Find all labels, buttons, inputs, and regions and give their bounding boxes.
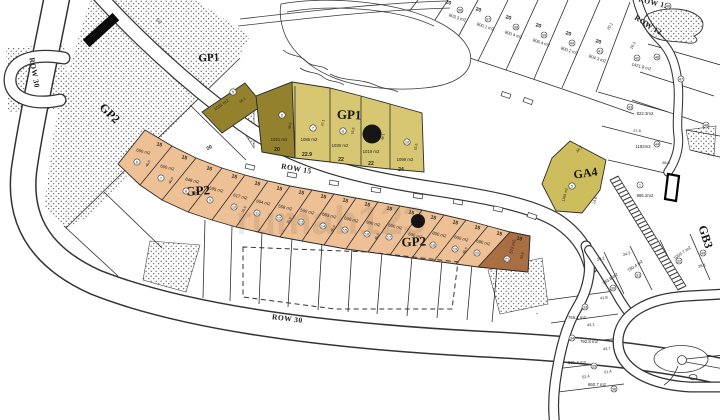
svg-text:7: 7 (160, 176, 162, 181)
svg-text:37: 37 (486, 17, 490, 22)
svg-text:21: 21 (505, 257, 509, 262)
svg-text:800.4 m2: 800.4 m2 (504, 29, 523, 39)
svg-text:27.8: 27.8 (633, 128, 641, 133)
svg-text:8: 8 (185, 189, 187, 194)
svg-text:9: 9 (209, 198, 211, 203)
svg-text:46: 46 (655, 55, 659, 60)
svg-text:19: 19 (453, 247, 457, 252)
svg-text:41: 41 (598, 49, 602, 54)
svg-text:20: 20 (445, 0, 452, 7)
svg-text:11: 11 (255, 211, 259, 216)
svg-text:20: 20 (274, 147, 280, 153)
svg-text:780.4 m2: 780.4 m2 (626, 258, 644, 273)
svg-text:24: 24 (398, 167, 404, 173)
svg-text:20: 20 (475, 6, 482, 14)
svg-text:7: 7 (312, 126, 314, 131)
svg-text:13: 13 (299, 220, 303, 225)
zone-gb3: GB3 (696, 224, 717, 251)
svg-text:1421.8 m2: 1421.8 m2 (631, 62, 652, 72)
svg-text:803.3 m2: 803.3 m2 (448, 12, 467, 22)
svg-text:38: 38 (514, 25, 518, 30)
screenshot-root: + rumah123 ROW 30 ROW 30 ROW 15 ROW 12 R… (0, 0, 720, 420)
svg-text:860.7 m2: 860.7 m2 (588, 382, 607, 387)
svg-text:986.2m2: 986.2m2 (637, 193, 654, 198)
svg-text:20: 20 (565, 30, 572, 38)
svg-text:36: 36 (458, 8, 462, 13)
svg-text:43.1: 43.1 (587, 322, 595, 328)
svg-text:1192m2: 1192m2 (635, 144, 651, 149)
svg-text:26.3: 26.3 (629, 41, 637, 50)
survey-cross: + (536, 311, 539, 316)
terrain-contour (238, 0, 471, 92)
svg-text:800.1 m2: 800.1 m2 (476, 21, 495, 31)
svg-text:1030 m2: 1030 m2 (332, 143, 349, 148)
svg-text:766.1 m2: 766.1 m2 (568, 315, 587, 320)
svg-text:45: 45 (666, 4, 670, 9)
svg-text:792.8 m2: 792.8 m2 (580, 339, 599, 344)
svg-text:14.6: 14.6 (591, 196, 598, 205)
svg-text:39: 39 (542, 33, 546, 38)
svg-text:33: 33 (583, 305, 587, 310)
svg-text:18: 18 (431, 243, 435, 248)
right-lot-labels: 42 1421.8 m2 43 822.3m2 44 1192m2 1 986.… (627, 55, 660, 198)
svg-text:15: 15 (343, 228, 347, 233)
svg-text:51.4: 51.4 (604, 368, 613, 374)
svg-text:16: 16 (365, 232, 369, 237)
svg-text:800.2 m2: 800.2 m2 (560, 45, 579, 55)
svg-text:8: 8 (342, 129, 344, 134)
svg-text:1019 m2: 1019 m2 (363, 149, 380, 154)
svg-text:32: 32 (677, 259, 681, 264)
svg-text:1085 m2: 1085 m2 (301, 137, 318, 142)
site-plan-map: + rumah123 ROW 30 ROW 30 ROW 15 ROW 12 R… (0, 0, 720, 420)
svg-text:47: 47 (679, 77, 683, 82)
watermark: rumah123 (236, 199, 425, 243)
svg-text:1021 m2: 1021 m2 (271, 137, 288, 142)
svg-text:6: 6 (281, 113, 283, 118)
svg-text:52.4: 52.4 (582, 373, 591, 379)
svg-text:831.4 m2: 831.4 m2 (568, 360, 587, 365)
svg-text:22.9: 22.9 (302, 152, 312, 158)
svg-text:42: 42 (635, 56, 639, 61)
zone-gp1: GP1 (337, 107, 362, 123)
svg-text:20: 20 (535, 22, 542, 30)
svg-text:5: 5 (571, 184, 573, 189)
svg-text:1003.7 m2: 1003.7 m2 (672, 245, 692, 261)
svg-text:804.3 m2: 804.3 m2 (588, 53, 607, 63)
svg-text:24.3: 24.3 (622, 250, 631, 257)
svg-text:48: 48 (704, 123, 708, 128)
svg-text:12: 12 (277, 216, 281, 221)
svg-text:31: 31 (636, 273, 640, 278)
svg-text:58.0: 58.0 (662, 160, 670, 165)
svg-text:49: 49 (701, 251, 705, 256)
svg-text:806.4 m2: 806.4 m2 (532, 37, 551, 47)
svg-text:43.7: 43.7 (603, 346, 611, 352)
svg-text:36: 36 (612, 387, 616, 392)
svg-text:43: 43 (628, 105, 632, 110)
svg-text:822.3m2: 822.3m2 (637, 111, 654, 116)
svg-text:20: 20 (595, 38, 602, 46)
svg-text:17: 17 (387, 235, 391, 240)
zone-gp1-small: GP1 (198, 51, 219, 64)
svg-text:20.1: 20.1 (606, 22, 614, 31)
svg-text:23.2: 23.2 (596, 255, 605, 262)
svg-text:1: 1 (639, 183, 641, 188)
svg-text:1099 m2: 1099 m2 (397, 157, 414, 162)
svg-text:41.8: 41.8 (600, 295, 608, 301)
svg-text:6: 6 (136, 160, 138, 165)
svg-text:35: 35 (592, 364, 596, 369)
svg-text:5: 5 (232, 90, 234, 95)
svg-text:20: 20 (206, 144, 214, 152)
svg-text:22: 22 (368, 161, 374, 167)
svg-text:22: 22 (338, 157, 344, 163)
svg-text:20: 20 (505, 14, 512, 22)
outlined-structure (665, 174, 679, 201)
